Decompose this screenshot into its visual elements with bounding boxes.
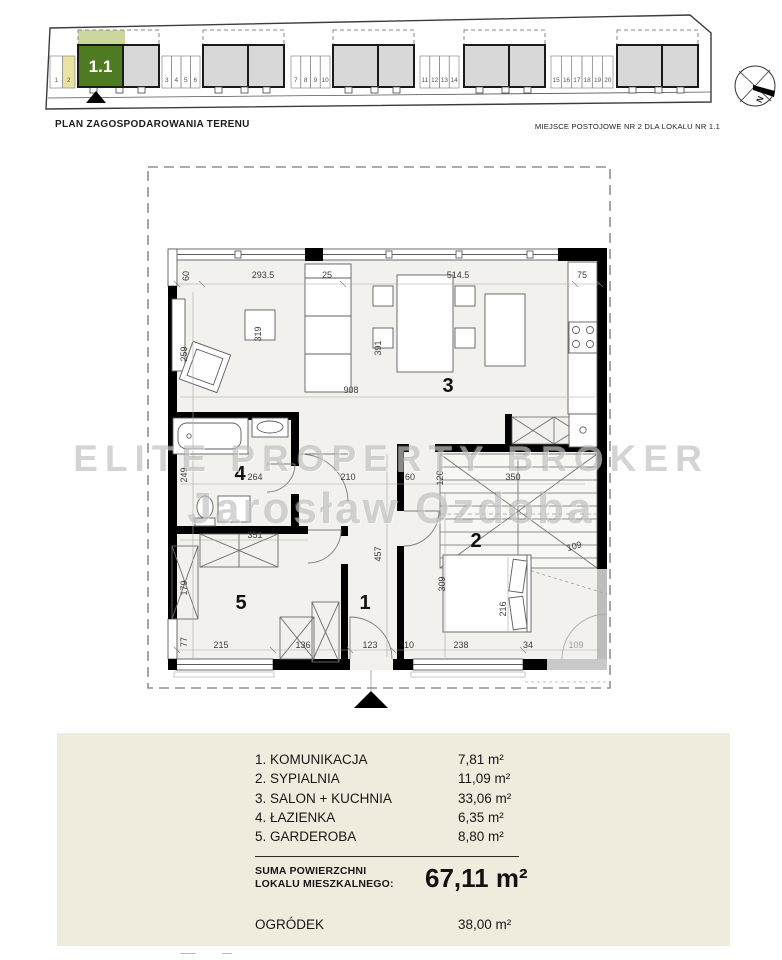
- washbasin: [252, 418, 288, 437]
- floor-plan: 60293.525514.575259319391908249264210601…: [145, 162, 615, 714]
- sofa: [305, 264, 351, 392]
- room-name: 2. SYPIALNIA: [255, 769, 458, 788]
- dimension-label: 179: [179, 580, 189, 595]
- stall-number: 10: [322, 77, 330, 84]
- page: 1.1 1234567891011121314151617181920 N PL…: [0, 0, 782, 960]
- dimension-label: 25: [322, 270, 332, 280]
- dimension-label: 34: [523, 640, 533, 650]
- dimension-label: 309: [437, 576, 447, 591]
- bathtub: [173, 418, 248, 454]
- dimension-label: 259: [179, 346, 189, 361]
- stall-number: 15: [553, 77, 561, 84]
- dimension-label: 77: [179, 637, 189, 647]
- stall-number: 18: [584, 77, 592, 84]
- parking-note: MIEJSCE POSTOJOWE NR 2 DLA LOKALU NR 1.1: [535, 122, 720, 131]
- room-area: 7,81 m²: [458, 750, 578, 769]
- dimension-label: 60: [181, 271, 191, 281]
- stall-number: 7: [294, 77, 298, 84]
- dimension-label: 60: [405, 472, 415, 482]
- room-number: 4: [234, 463, 246, 485]
- total-area-value: 67,11 m²: [425, 863, 528, 894]
- stall-number: 13: [441, 77, 449, 84]
- dimension-label: 457: [373, 546, 383, 561]
- stall-number: 16: [563, 77, 571, 84]
- dimension-label: 216: [498, 601, 508, 616]
- room-name: 1. KOMUNIKACJA: [255, 750, 458, 769]
- dimension-label: 908: [343, 385, 358, 395]
- room-number: 2: [470, 530, 481, 552]
- dimension-label: 319: [253, 326, 263, 341]
- room-name: 5. GARDEROBA: [255, 827, 458, 846]
- room-number: 1: [359, 592, 370, 614]
- compass-icon: N: [735, 66, 775, 106]
- dimension-label: 264: [247, 472, 262, 482]
- stall-number: 11: [422, 77, 429, 84]
- kitchen-island: [485, 294, 525, 366]
- bed: [443, 555, 531, 632]
- dimension-label: 350: [505, 472, 520, 482]
- room-area: 33,06 m²: [458, 789, 578, 808]
- legend-divider: [255, 856, 519, 857]
- site-plan: 1.1 1234567891011121314151617181920 N: [40, 8, 782, 120]
- room-number: 3: [442, 375, 453, 397]
- dimension-label: 293.5: [252, 270, 275, 280]
- room-number: 5: [235, 592, 246, 614]
- stall-number: 8: [304, 77, 308, 84]
- stall-number: 4: [174, 77, 178, 84]
- terrace-edge: [547, 659, 607, 670]
- room-area: 11,09 m²: [458, 769, 578, 788]
- stall-number: 20: [604, 77, 612, 84]
- garden-value: 38,00 m²: [458, 917, 511, 932]
- dimension-label: 109: [568, 640, 583, 650]
- stall-number: 19: [594, 77, 602, 84]
- sills: [174, 672, 525, 677]
- dimension-label: 514.5: [447, 270, 470, 280]
- garden-label: OGRÓDEK: [255, 917, 324, 932]
- dimension-label: 120: [435, 470, 445, 485]
- stall-number: 14: [451, 77, 459, 84]
- dimension-label: 391: [373, 340, 383, 355]
- total-area-label: SUMA POWIERZCHNI LOKALU MIESZKALNEGO:: [255, 865, 394, 891]
- stall-number: 3: [165, 77, 169, 84]
- stall-number: 9: [314, 77, 318, 84]
- dimension-label: 123: [362, 640, 377, 650]
- dimension-label: 215: [213, 640, 228, 650]
- crop-mark: [180, 953, 196, 954]
- room-name: 4. ŁAZIENKA: [255, 808, 458, 827]
- dimension-label: 249: [179, 467, 189, 482]
- dimension-label: 210: [340, 472, 355, 482]
- entrance-marker: [354, 691, 388, 708]
- legend-row: 1. KOMUNIKACJA7,81 m²: [255, 750, 578, 769]
- dimension-label: 10: [404, 640, 414, 650]
- dimension-label: 351: [247, 530, 262, 540]
- stall-number: 12: [431, 77, 439, 84]
- stall-number: 2: [67, 77, 71, 84]
- washer: [218, 496, 250, 522]
- building: [464, 45, 545, 87]
- legend-row: 5. GARDEROBA8,80 m²: [255, 827, 578, 846]
- kitchen-counter: [568, 262, 597, 447]
- dimension-label: 238: [453, 640, 468, 650]
- stall-number: 1: [54, 77, 58, 84]
- stall-number: 6: [193, 77, 197, 84]
- stall-number: 5: [184, 77, 188, 84]
- dimension-label: 136: [295, 640, 310, 650]
- room-name: 3. SALON + KUCHNIA: [255, 789, 458, 808]
- dimension-label: 75: [577, 270, 587, 280]
- crop-mark: [222, 953, 232, 954]
- building: [203, 45, 284, 87]
- legend-row: 4. ŁAZIENKA6,35 m²: [255, 808, 578, 827]
- legend-panel: 1. KOMUNIKACJA7,81 m²2. SYPIALNIA11,09 m…: [57, 733, 730, 946]
- unit-label: 1.1: [89, 57, 113, 76]
- legend-rows: 1. KOMUNIKACJA7,81 m²2. SYPIALNIA11,09 m…: [255, 750, 578, 846]
- site-plan-title: PLAN ZAGOSPODAROWANIA TERENU: [55, 119, 250, 130]
- room-area: 8,80 m²: [458, 827, 578, 846]
- room-area: 6,35 m²: [458, 808, 578, 827]
- building: [333, 45, 414, 87]
- building: [617, 45, 698, 87]
- legend-row: 3. SALON + KUCHNIA33,06 m²: [255, 789, 578, 808]
- stall-number: 17: [573, 77, 581, 84]
- legend-row: 2. SYPIALNIA11,09 m²: [255, 769, 578, 788]
